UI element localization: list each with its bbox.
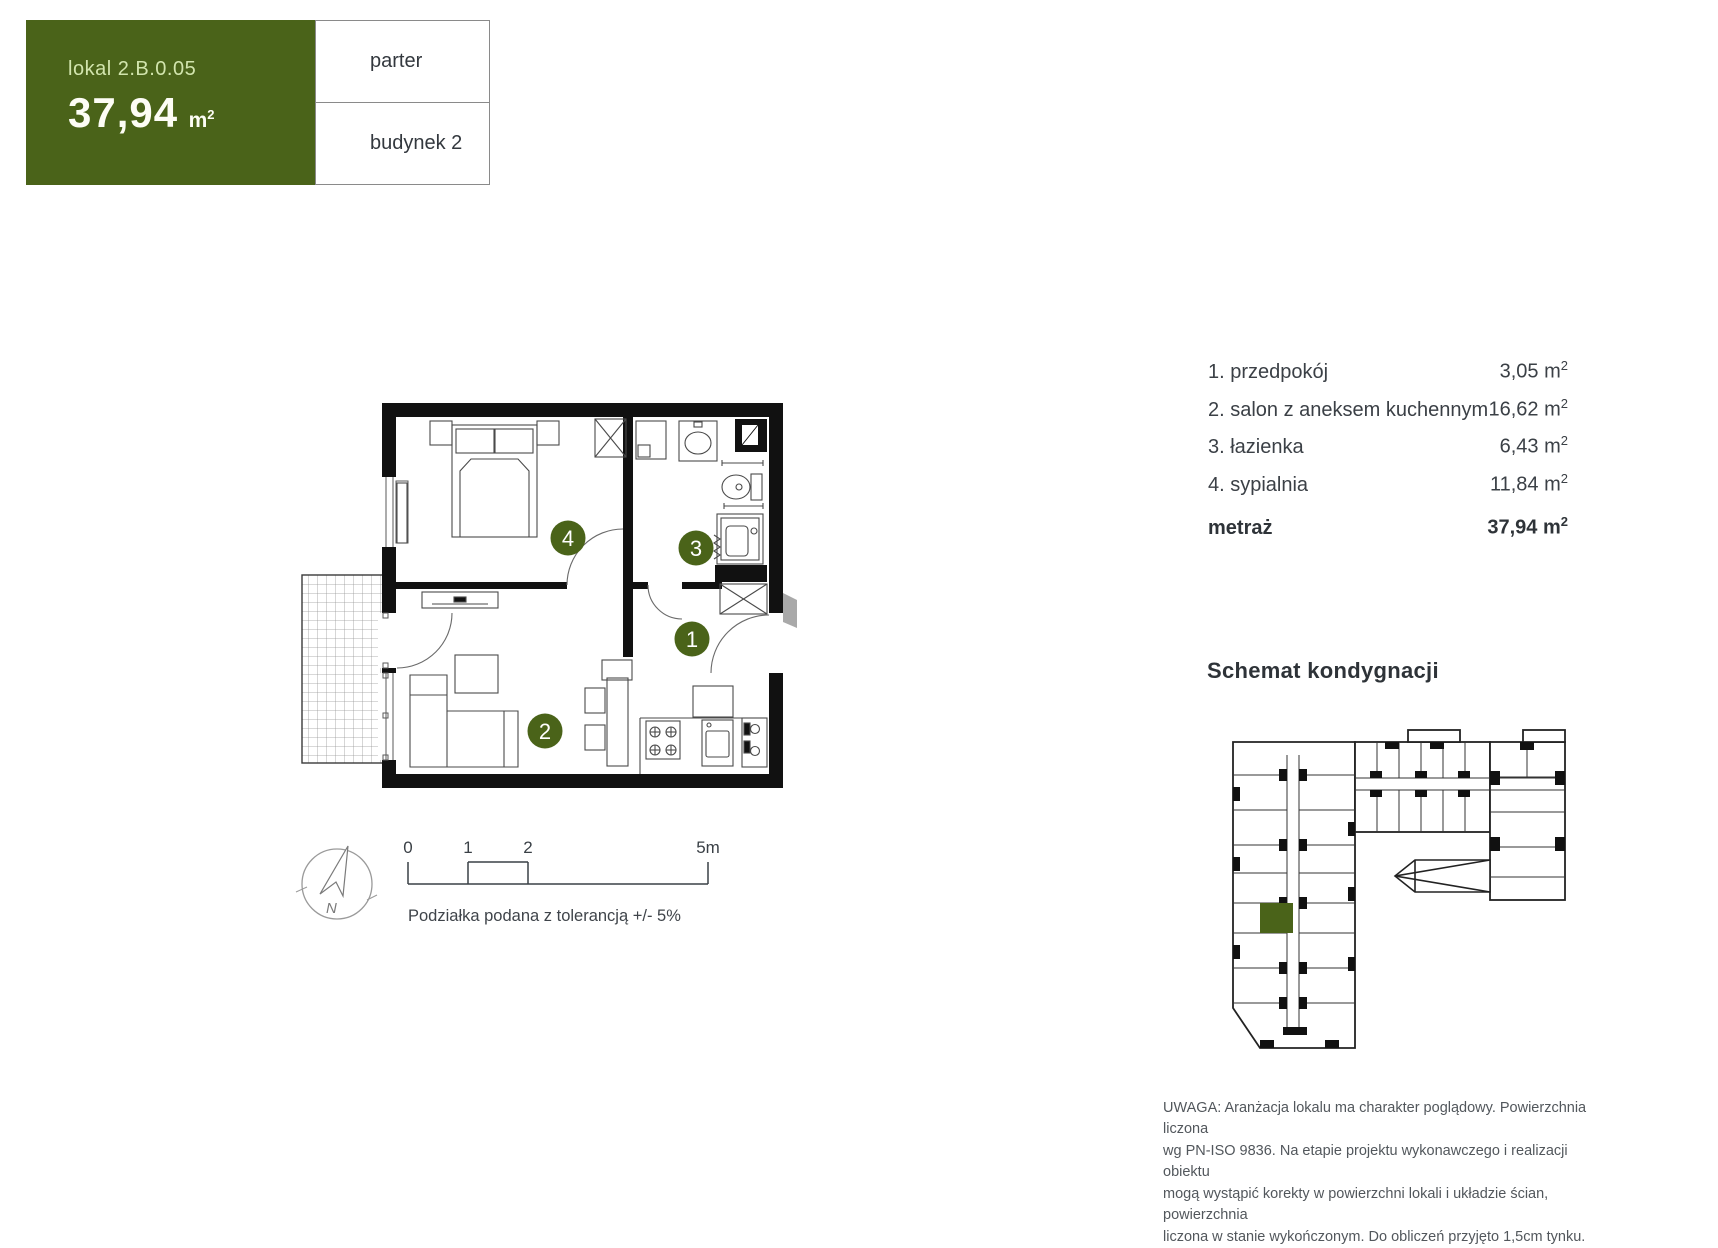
vent-shaft (735, 419, 767, 452)
ramp (1395, 860, 1490, 892)
hall-wardrobe (720, 584, 767, 614)
compass-north-label: N (326, 900, 337, 917)
unit-area-unit: m2 (189, 109, 215, 132)
scale-tick-label: 0 (403, 838, 412, 857)
room-area: 11,84 m2 (1490, 471, 1568, 497)
scale-tick-label: 1 (463, 838, 472, 857)
wardrobe (595, 419, 626, 457)
room-badges: 4 3 1 2 (528, 521, 714, 749)
scale-tick-label: 5m (696, 838, 720, 857)
room-row-3: 3. łazienka 6,43 m2 (1208, 433, 1568, 461)
badge-bathroom: 3 (690, 536, 702, 561)
floor-schematic (1225, 727, 1570, 1059)
room-label: 3. łazienka (1208, 436, 1304, 459)
room-row-1: 1. przedpokój 3,05 m2 (1208, 358, 1568, 386)
entry-threshold (783, 593, 797, 628)
chair (585, 688, 605, 713)
room-row-4: 4. sypialnia 11,84 m2 (1208, 471, 1568, 499)
badge-living: 2 (539, 719, 551, 744)
coffee-table (455, 655, 498, 693)
disclaimer-line: liczona w stanie wykończonym. Do oblicze… (1163, 1227, 1613, 1248)
stove (646, 721, 680, 759)
bathroom-sink (679, 421, 717, 461)
disclaimer-line: mogą wystąpić korekty w powierzchni loka… (1163, 1184, 1613, 1227)
scale-caption: Podziałka podana z tolerancją +/- 5% (408, 907, 681, 925)
building-cell: budynek 2 (316, 102, 489, 184)
unit-header-card: lokal 2.B.0.05 37,94 m2 (26, 20, 315, 185)
room-row-2: 2. salon z aneksem kuchennym 16,62 m2 (1208, 396, 1568, 424)
kitchen-cabinet (693, 686, 733, 717)
schematic-title: Schemat kondygnacji (1207, 658, 1439, 684)
room-area: 6,43 m2 (1500, 433, 1568, 459)
total-area: 37,94 m2 (1487, 514, 1568, 540)
room-area: 3,05 m2 (1500, 358, 1568, 384)
total-area-row: metraż 37,94 m2 (1208, 514, 1568, 542)
highlighted-unit (1260, 903, 1293, 933)
dining-table (607, 678, 628, 766)
room-label: 4. sypialnia (1208, 474, 1308, 497)
room-label: 1. przedpokój (1208, 361, 1328, 384)
scale-tick-label: 2 (523, 838, 532, 857)
unit-meta-table: parter budynek 2 (315, 20, 490, 185)
disclaimer-line: wg PN-ISO 9836. Na etapie projektu wykon… (1163, 1141, 1613, 1184)
kitchen-sink (742, 718, 767, 767)
oven (702, 720, 733, 766)
nightstand (430, 421, 452, 445)
shower (717, 514, 763, 564)
disclaimer: UWAGA: Aranżacja lokalu ma charakter pog… (1163, 1098, 1613, 1248)
compass-and-scale: N 0 1 2 5m Podziałka podana z tolerancją… (280, 832, 740, 940)
badge-hallway: 1 (686, 627, 698, 652)
floor-cell: parter (316, 21, 489, 102)
tv-unit (422, 592, 498, 608)
total-label: metraż (1208, 517, 1272, 540)
sofa (410, 675, 518, 767)
balcony (302, 575, 383, 763)
unit-area-value: 37,94 (68, 89, 178, 136)
unit-id-label: lokal 2.B.0.05 (68, 58, 315, 81)
washing-machine (636, 421, 666, 459)
furniture (397, 419, 767, 774)
disclaimer-line: UWAGA: Aranżacja lokalu ma charakter pog… (1163, 1098, 1613, 1141)
chair (585, 725, 605, 750)
nightstand (537, 421, 559, 445)
chair (602, 660, 632, 680)
badge-bedroom: 4 (562, 526, 574, 551)
compass-icon: N (296, 846, 377, 919)
outer-walls (382, 403, 783, 788)
room-label: 2. salon z aneksem kuchennym (1208, 399, 1488, 422)
scale-bar: 0 1 2 5m Podziałka podana z tolerancją +… (403, 838, 720, 925)
room-area: 16,62 m2 (1488, 396, 1568, 422)
floor-plan: 4 3 1 2 (290, 395, 802, 797)
unit-area: 37,94 m2 (68, 89, 315, 137)
toilet (722, 474, 762, 500)
